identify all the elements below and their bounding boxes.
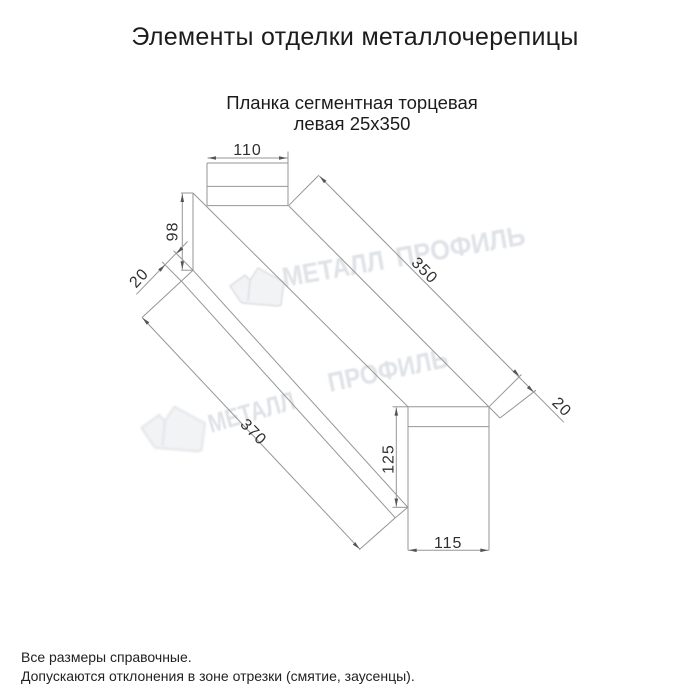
svg-text:20: 20: [548, 394, 574, 420]
svg-text:ПРОФИЛЬ: ПРОФИЛЬ: [325, 344, 451, 398]
svg-text:125: 125: [381, 444, 398, 474]
svg-text:МЕТАЛЛ: МЕТАЛЛ: [280, 244, 387, 293]
svg-text:110: 110: [233, 142, 262, 159]
svg-text:20: 20: [126, 265, 152, 291]
svg-text:98: 98: [165, 222, 182, 242]
svg-text:115: 115: [434, 535, 463, 552]
